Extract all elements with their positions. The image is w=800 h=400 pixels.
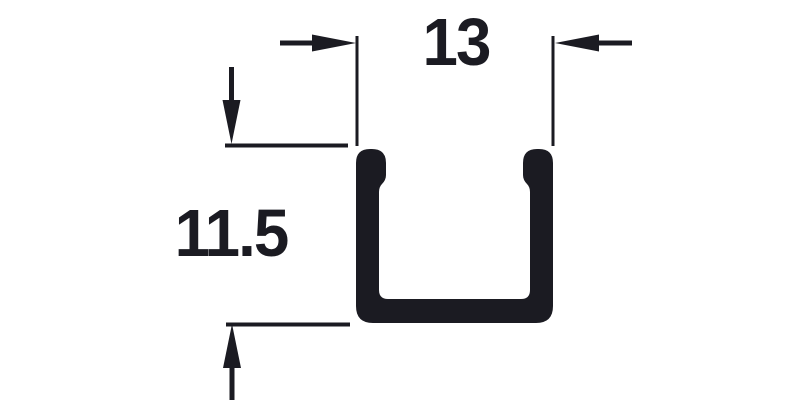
width-dim-arrow-right: [555, 35, 632, 52]
arrow-down-icon: [223, 100, 241, 144]
arrow-up-icon: [223, 324, 241, 368]
arrow-left-icon: [555, 35, 599, 52]
height-dim-arrow-bottom: [223, 324, 241, 400]
drawing-canvas: 13 11.5: [0, 0, 800, 400]
height-ext-line-top: [225, 144, 348, 148]
profile-drawing: [0, 0, 800, 400]
width-dim-arrow-left: [280, 35, 356, 52]
height-ext-line-bottom: [226, 323, 350, 327]
width-ext-line-right: [552, 36, 555, 146]
arrow-right-icon: [312, 35, 356, 52]
width-ext-line-left: [356, 36, 359, 146]
width-dimension-label: 13: [418, 12, 494, 74]
height-dim-arrow-top: [223, 67, 241, 144]
height-dimension-label: 11.5: [160, 203, 303, 265]
u-channel-profile: [356, 149, 553, 323]
